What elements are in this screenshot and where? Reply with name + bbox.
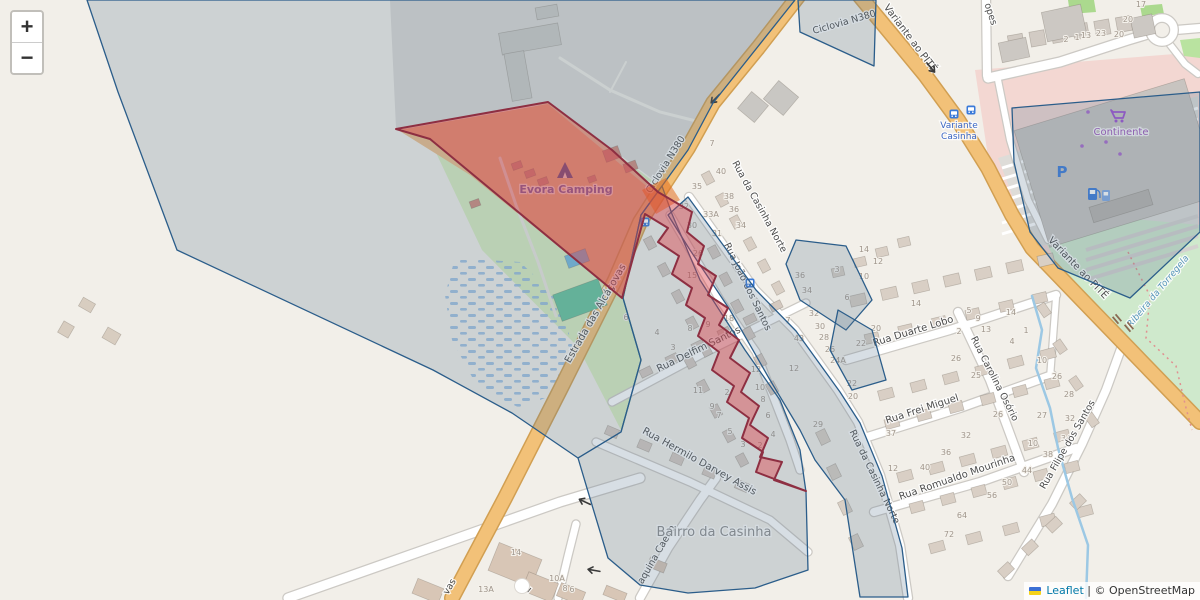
house-number: 56 <box>987 491 997 500</box>
ukraine-flag-icon <box>1029 587 1041 595</box>
house-number: 6 <box>569 585 574 594</box>
zoom-in-button[interactable]: + <box>12 12 42 43</box>
house-number: 40 <box>920 463 930 472</box>
house-number: 13 <box>981 325 991 334</box>
house-number: 36 <box>729 205 739 214</box>
place-label: Variante <box>940 121 978 131</box>
house-number: 8 <box>562 584 567 593</box>
house-number: 20 <box>1123 15 1133 24</box>
house-number: 14 <box>1006 308 1016 317</box>
house-number: 72 <box>944 530 954 539</box>
house-number: 17 <box>1136 0 1146 9</box>
house-number: 27 <box>1037 411 1047 420</box>
house-number: 14 <box>511 548 521 557</box>
house-number: 20 <box>848 392 858 401</box>
house-number: 35 <box>692 182 702 191</box>
house-number: 2 <box>956 327 961 336</box>
bus-icon <box>967 106 976 115</box>
house-number: 1 <box>1074 33 1079 42</box>
map-svg: 3532302615403833A36343177431236343230282… <box>0 0 1200 600</box>
house-number: 33A <box>703 210 719 219</box>
house-number: 26 <box>993 410 1003 419</box>
house-number: 50 <box>1002 478 1012 487</box>
house-number: 23 <box>1096 29 1106 38</box>
osm-copyright: © OpenStreetMap <box>1094 584 1195 597</box>
house-number: 32 <box>961 431 971 440</box>
attribution-bar: Leaflet | © OpenStreetMap <box>1024 582 1200 600</box>
house-number: 10 <box>1037 356 1047 365</box>
house-number: 1 <box>1023 326 1028 335</box>
house-number: 64 <box>957 511 967 520</box>
map-canvas[interactable]: 3532302615403833A36343177431236343230282… <box>0 0 1200 600</box>
house-number: 12 <box>873 257 883 266</box>
house-number: 9 <box>975 314 980 323</box>
house-number: 20 <box>1114 30 1124 39</box>
house-number: 12 <box>888 464 898 473</box>
house-number: 34 <box>736 221 746 230</box>
zoom-out-button[interactable]: − <box>12 43 42 73</box>
leaflet-zoom-control: + − <box>10 10 44 75</box>
house-number: 14 <box>859 245 869 254</box>
house-number: 37 <box>886 429 896 438</box>
house-number: 30 <box>815 322 825 331</box>
house-number: 13 <box>1081 31 1091 40</box>
house-number: 28 <box>819 333 829 342</box>
house-number: 28 <box>1064 390 1074 399</box>
house-number: 38 <box>724 192 734 201</box>
house-number: 2 <box>1063 35 1068 44</box>
house-number: 7 <box>709 139 714 148</box>
leaflet-link[interactable]: Leaflet <box>1046 584 1083 597</box>
house-number: 38 <box>1043 450 1053 459</box>
house-number: 25 <box>971 371 981 380</box>
house-number: 26 <box>1052 372 1062 381</box>
house-number: 13A <box>478 585 494 594</box>
house-number: 40 <box>716 167 726 176</box>
place-label: Casinha <box>941 132 977 142</box>
house-number: 44 <box>1022 466 1032 475</box>
house-number: 4 <box>1009 337 1014 346</box>
house-number: 32 <box>1065 414 1075 423</box>
pill-icon <box>515 579 530 594</box>
house-number: 10A <box>549 574 565 583</box>
house-number: 10 <box>1028 439 1038 448</box>
bus-icon <box>950 110 959 119</box>
house-number: 14 <box>911 299 921 308</box>
house-number: 26 <box>951 354 961 363</box>
house-number: 5 <box>966 306 971 315</box>
house-number: 36 <box>941 448 951 457</box>
